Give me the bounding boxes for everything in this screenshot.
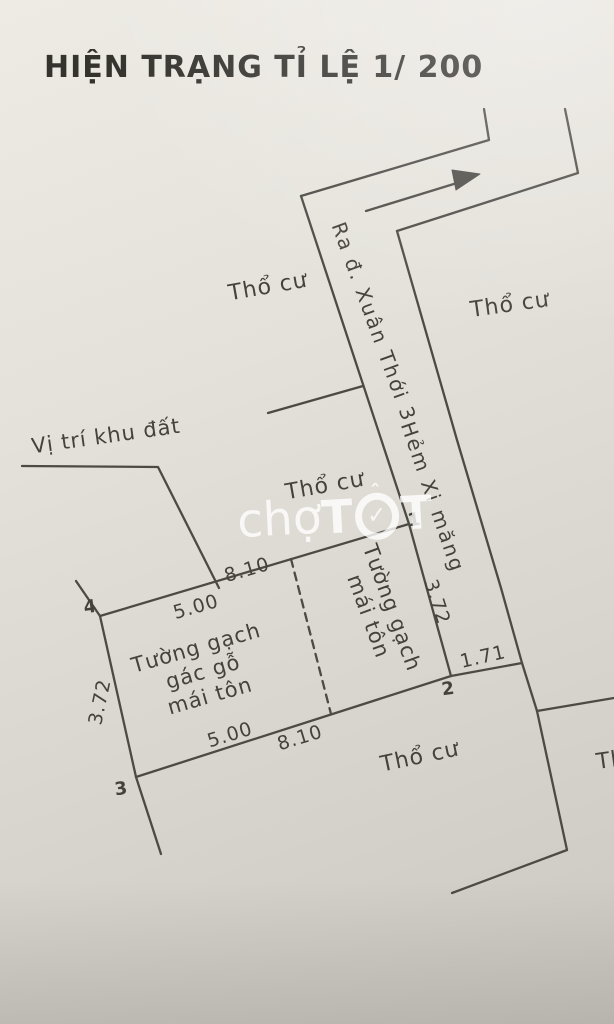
watermark-cho-text: chợ [236,490,323,549]
alley-right-line [397,231,567,893]
page-title: HIỆN TRẠNG TỈ LỆ 1/ 200 [44,50,483,85]
location-leader-line [22,466,219,588]
corner3-extension-tick [136,777,161,854]
watermark-circumflex: ˆ [370,480,381,504]
watermark-t2: T [399,484,433,540]
direction-arrow-head [452,170,480,190]
right-parcel-boundary [537,698,614,711]
room-divider-dashed-line [291,559,331,714]
direction-arrow-shaft [366,183,457,211]
top-left-parcel-boundary [268,386,363,413]
watermark-t1: T [320,489,354,545]
survey-sketch-page: HIỆN TRẠNG TỈ LỆ 1/ 200 Thổ cư Thổ cư Th… [0,0,614,1024]
chotot-watermark: chợ T ˆ ✓ T [236,484,434,549]
watermark-o-circle: ˆ ✓ [354,492,400,541]
watermark-check-icon: ✓ [366,502,387,529]
